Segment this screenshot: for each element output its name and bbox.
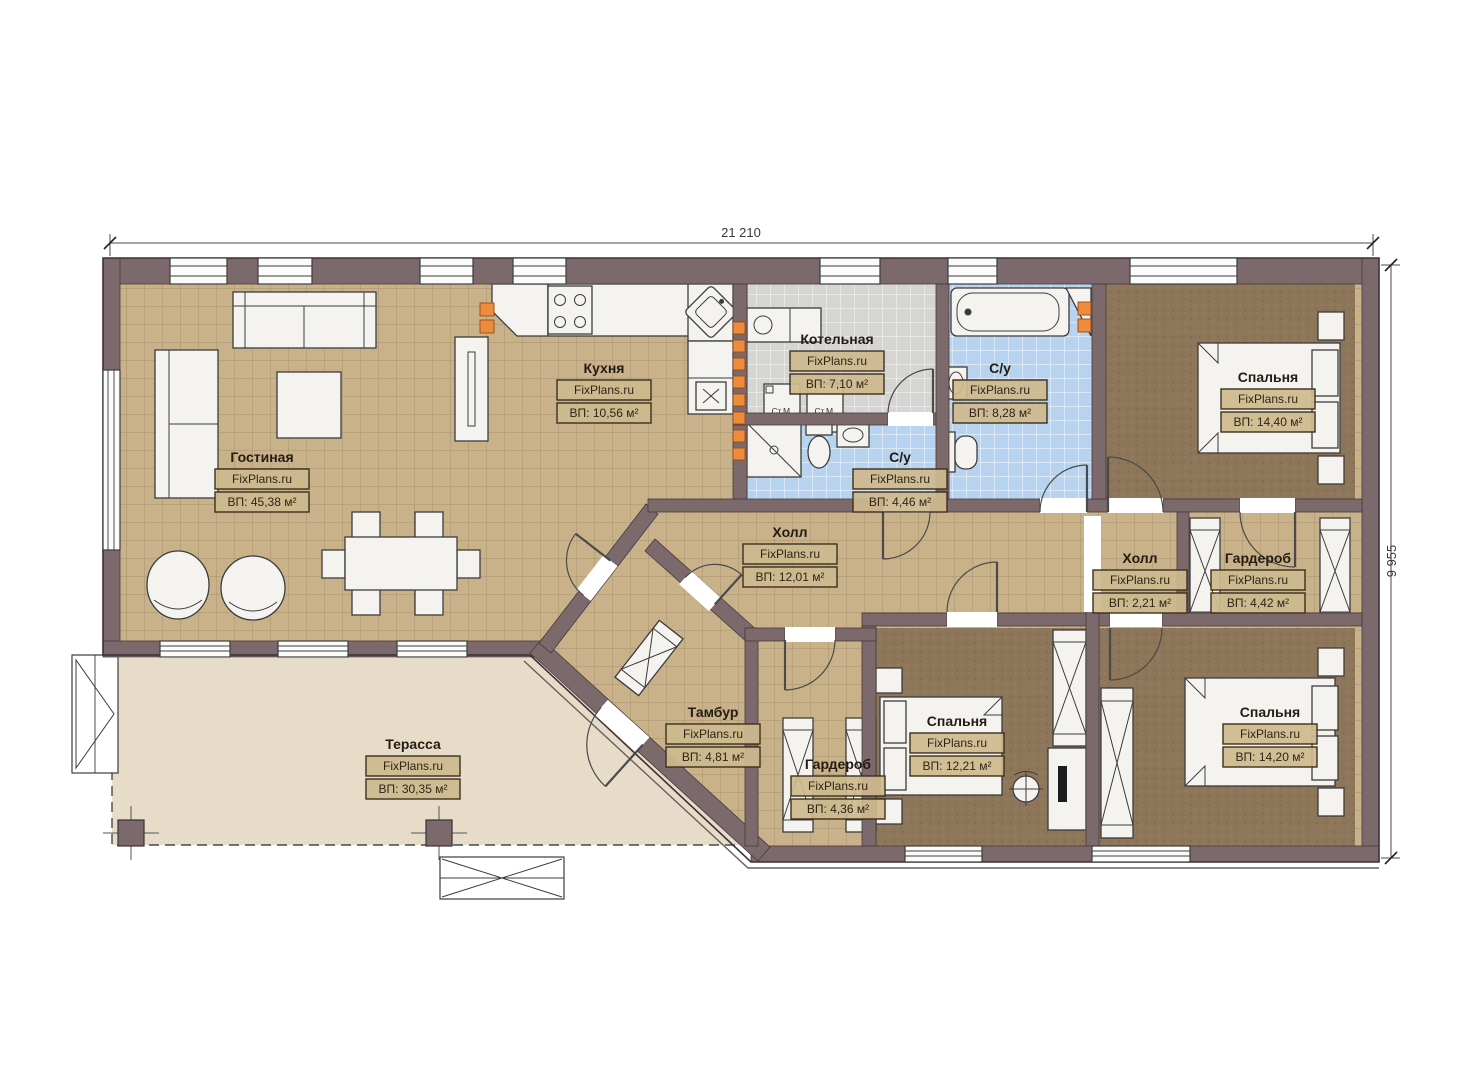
svg-text:Спальня: Спальня [1238, 369, 1298, 385]
vent-icon [733, 394, 745, 406]
watermark: FixPlans.ru [808, 779, 868, 793]
wall-hall-north [648, 499, 883, 512]
window-top-3 [420, 258, 473, 284]
svg-text:ВП: 10,56 м²: ВП: 10,56 м² [570, 406, 639, 420]
coffee-table [277, 372, 341, 438]
svg-text:С/у: С/у [989, 360, 1011, 376]
svg-text:ВП: 7,10 м²: ВП: 7,10 м² [806, 377, 868, 391]
window-south-1 [160, 641, 230, 657]
toilet-big-bath [945, 432, 977, 472]
window-top-boiler [820, 258, 880, 284]
wardrobe-cabinet [1101, 688, 1133, 838]
svg-text:ВП: 12,01 м²: ВП: 12,01 м² [756, 570, 825, 584]
window-bottom-bedroom-right [1092, 846, 1190, 862]
window-left-living [103, 370, 120, 550]
terrace-stair-left [72, 655, 118, 773]
nightstand [1318, 456, 1344, 484]
floor-plan: 21 210 9 955 [0, 0, 1473, 1080]
nightstand [1318, 648, 1344, 676]
dimension-right: 9 955 [1381, 259, 1400, 864]
wall-right [1362, 258, 1379, 862]
wall-kitchen-boiler [733, 284, 747, 499]
svg-text:ВП: 4,36 м²: ВП: 4,36 м² [807, 802, 869, 816]
vent-icon [733, 340, 745, 352]
window-top-bath [948, 258, 997, 284]
wall-bath-divider [936, 284, 949, 499]
nightstand [1318, 788, 1344, 816]
wall-hall-south [745, 628, 785, 641]
svg-text:ВП: 4,81 м²: ВП: 4,81 м² [682, 750, 744, 764]
watermark: FixPlans.ru [807, 354, 867, 368]
window-top-2 [258, 258, 312, 284]
svg-text:С/у: С/у [889, 449, 911, 465]
vent-icon [1078, 302, 1091, 315]
floor-plan-canvas: 21 210 9 955 [0, 0, 1473, 1080]
window-top-bedroom [1130, 258, 1237, 284]
window-top-4 [513, 258, 566, 284]
dimension-top: 21 210 [104, 225, 1379, 256]
dishwasher [696, 382, 726, 410]
wardrobe-cabinet [1320, 518, 1350, 624]
watermark: FixPlans.ru [927, 736, 987, 750]
wall-bedroom-south [1295, 499, 1362, 512]
svg-text:ВП: 2,21 м²: ВП: 2,21 м² [1109, 596, 1171, 610]
wall-bedroom-south [1163, 499, 1240, 512]
watermark: FixPlans.ru [1240, 727, 1300, 741]
label-boiler: Котельная FixPlans.ru ВП: 7,10 м² [790, 331, 884, 394]
svg-text:ВП: 45,38 м²: ВП: 45,38 м² [228, 495, 297, 509]
wall-corridor-south [862, 613, 947, 626]
window-south-2 [278, 641, 348, 657]
svg-text:ВП: 4,46 м²: ВП: 4,46 м² [869, 495, 931, 509]
shower [747, 423, 801, 477]
desk [1048, 748, 1086, 830]
svg-text:Гостиная: Гостиная [230, 449, 293, 465]
watermark: FixPlans.ru [1228, 573, 1288, 587]
label-wardrobe-right: Гардероб FixPlans.ru ВП: 4,42 м² [1211, 550, 1305, 613]
sofa-top [233, 292, 376, 348]
watermark: FixPlans.ru [574, 383, 634, 397]
svg-text:Холл: Холл [1122, 550, 1157, 566]
dimension-height-label: 9 955 [1384, 545, 1399, 578]
window-south-3 [397, 641, 467, 657]
vent-icon [733, 358, 745, 370]
svg-text:Терасса: Терасса [385, 736, 441, 752]
svg-text:Кухня: Кухня [584, 360, 625, 376]
vent-icon [480, 320, 494, 333]
wall-hall-south [835, 628, 876, 641]
svg-text:ВП: 14,20 м²: ВП: 14,20 м² [1236, 750, 1305, 764]
vent-icon [480, 303, 494, 316]
toilet-small-bath [806, 423, 832, 468]
wall-bath-bedroom [1092, 284, 1106, 499]
window-top-1 [170, 258, 227, 284]
svg-text:Гардероб: Гардероб [805, 756, 872, 772]
svg-text:Холл: Холл [772, 524, 807, 540]
watermark: FixPlans.ru [1110, 573, 1170, 587]
vent-icon [733, 412, 745, 424]
sink-small-bath [837, 423, 869, 447]
wardrobe-cabinet [1053, 630, 1086, 746]
bathtub [951, 288, 1069, 336]
nightstand [1318, 312, 1344, 340]
watermark: FixPlans.ru [760, 547, 820, 561]
terrace-stair-bottom [440, 857, 564, 899]
svg-text:Гардероб: Гардероб [1225, 550, 1292, 566]
vent-icon [733, 376, 745, 388]
svg-text:ВП: 4,42 м²: ВП: 4,42 м² [1227, 596, 1289, 610]
armchair-1 [147, 551, 209, 619]
watermark: FixPlans.ru [683, 727, 743, 741]
watermark: FixPlans.ru [970, 383, 1030, 397]
sofa-left [155, 350, 218, 498]
tv-stand [455, 337, 488, 441]
armchair-2 [221, 556, 285, 620]
vent-icon [1078, 319, 1091, 332]
wall-hall-north [1087, 499, 1108, 512]
svg-text:Тамбур: Тамбур [688, 704, 739, 720]
dimension-width-label: 21 210 [721, 225, 761, 240]
watermark: FixPlans.ru [1238, 392, 1298, 406]
vent-icon [733, 322, 745, 334]
svg-text:Спальня: Спальня [927, 713, 987, 729]
vent-icon [733, 448, 745, 460]
label-wardrobe-bottom: Гардероб FixPlans.ru ВП: 4,36 м² [791, 756, 885, 819]
wall-boiler-bath [733, 413, 888, 425]
svg-text:Спальня: Спальня [1240, 704, 1300, 720]
watermark: FixPlans.ru [232, 472, 292, 486]
nightstand [876, 668, 902, 693]
wall-bottom [751, 846, 1379, 862]
window-bottom-bedroom-middle [905, 846, 982, 862]
vent-icon [733, 430, 745, 442]
watermark: FixPlans.ru [383, 759, 443, 773]
svg-text:ВП: 12,21 м²: ВП: 12,21 м² [923, 759, 992, 773]
svg-text:ВП: 30,35 м²: ВП: 30,35 м² [379, 782, 448, 796]
stove [548, 286, 592, 334]
svg-text:Котельная: Котельная [800, 331, 873, 347]
watermark: FixPlans.ru [870, 472, 930, 486]
svg-text:ВП: 8,28 м²: ВП: 8,28 м² [969, 406, 1031, 420]
svg-text:ВП: 14,40 м²: ВП: 14,40 м² [1234, 415, 1303, 429]
wall-corridor-south [1162, 613, 1362, 626]
wall-bedrooms-divider [1086, 610, 1099, 846]
